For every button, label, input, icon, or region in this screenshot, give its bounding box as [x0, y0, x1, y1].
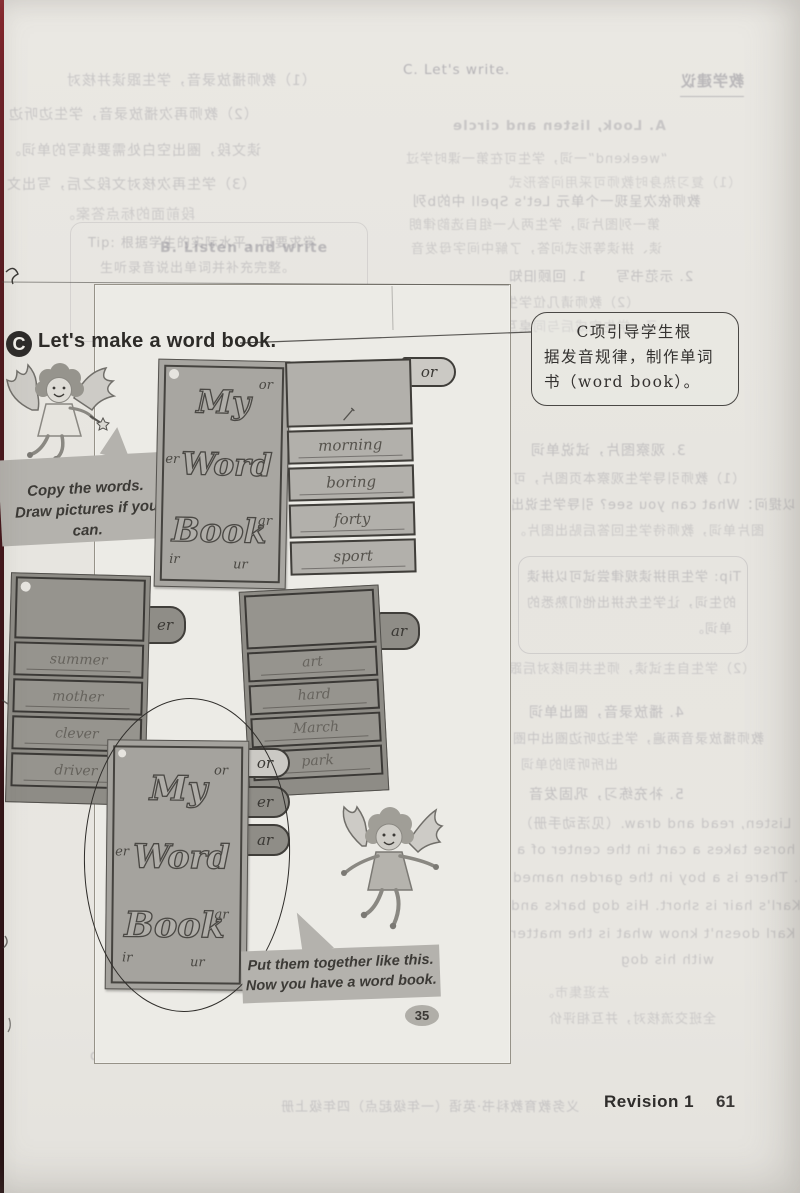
word-row: sport: [290, 538, 417, 575]
phonics-letter: ir: [169, 552, 180, 567]
word-row: summer: [13, 641, 144, 678]
phonics-letter: er: [165, 452, 179, 467]
cover-title-word: Word: [181, 446, 273, 484]
word-row: boring: [288, 464, 415, 501]
teacher-note-callout: C项引导学生根 据发音规律，制作单词 书（word book）。: [531, 312, 739, 406]
wordbook-cover-bottom: My Word Book or er ar ir ur: [105, 739, 250, 990]
section-heading: Let's make a word book.: [38, 330, 276, 353]
phonics-letter: ur: [190, 955, 205, 970]
cover-title-word: Book: [124, 904, 225, 946]
word-row: hard: [249, 679, 380, 716]
callout-line: 书（word book）。: [544, 370, 728, 395]
pencil-mark: [339, 404, 360, 425]
footer-unit-label: Revision 1: [604, 1092, 694, 1111]
phonics-letter: ar: [258, 514, 272, 529]
cover-title-word: My: [196, 382, 251, 421]
handwritten-word: hard: [262, 684, 367, 708]
phonics-letter: ir: [122, 950, 133, 965]
wordbook-page-or: morning boring forty sport: [281, 355, 421, 592]
cover-title-word: My: [150, 769, 208, 810]
word-row-blank: [244, 589, 377, 650]
footer-page-number: 61: [716, 1092, 735, 1111]
phonics-letter: or: [259, 378, 273, 393]
cover-title-word: Word: [133, 837, 230, 877]
speech-bubble-put-together: Put them together like this. Now you hav…: [241, 945, 441, 1004]
word-row: forty: [289, 501, 416, 538]
handwritten-word: sport: [301, 546, 406, 570]
cherub-illustration: [328, 802, 450, 937]
handwritten-word: March: [264, 717, 369, 741]
bubble-text-line: Draw pictures if you can.: [0, 494, 174, 545]
phonics-letter: er: [115, 844, 129, 859]
section-c-badge: C: [6, 331, 32, 357]
word-row-blank: [14, 576, 146, 641]
word-row: March: [250, 712, 381, 749]
speech-bubble-copy-words: Copy the words. Draw pictures if you can…: [0, 452, 174, 547]
guide-footer: Revision 161: [604, 1092, 735, 1112]
textbook-page-number: 35: [405, 1005, 439, 1026]
callout-line: C项引导学生根: [544, 320, 728, 345]
phonics-letter: ar: [214, 907, 228, 922]
word-row: morning: [287, 427, 414, 464]
tab-er: er: [144, 606, 186, 644]
word-row: art: [247, 646, 378, 683]
callout-line: 据发音规律，制作单词: [544, 345, 728, 370]
word-row: mother: [12, 678, 143, 715]
cover-hole-punch: [118, 749, 126, 757]
word-row-blank: [285, 358, 413, 427]
handwritten-word: morning: [298, 435, 403, 459]
handwritten-word: art: [260, 651, 365, 675]
phonics-letter: ur: [233, 557, 248, 572]
handwritten-word: summer: [26, 651, 130, 673]
cover-title-word: Book: [171, 510, 267, 551]
handwritten-word: forty: [300, 509, 405, 533]
phonics-letter: or: [214, 763, 228, 778]
handwritten-word: boring: [299, 472, 404, 496]
handwritten-word: mother: [26, 688, 130, 710]
tab-ar: ar: [378, 612, 420, 650]
wordbook-cover-top: My Word Book or er ar ir ur: [154, 359, 291, 590]
